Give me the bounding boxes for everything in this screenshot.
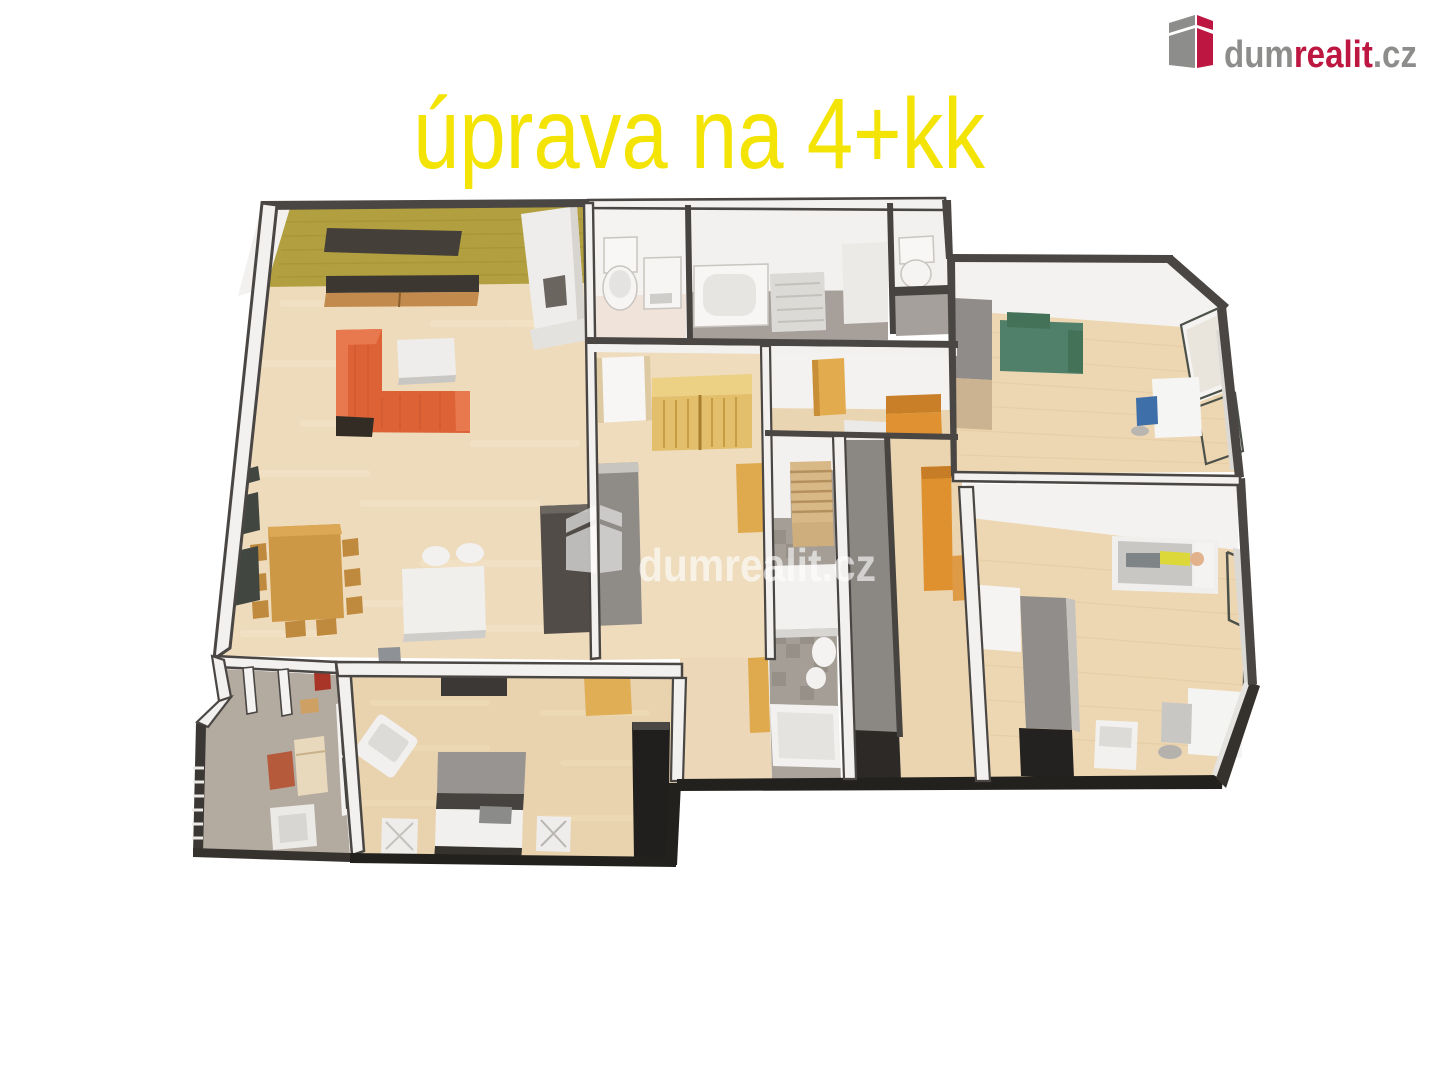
svg-text:dumrealit.cz: dumrealit.cz [638,539,876,591]
svg-text:dumrealit.cz: dumrealit.cz [1224,34,1417,76]
svg-text:úprava na 4+kk: úprava na 4+kk [413,78,986,190]
